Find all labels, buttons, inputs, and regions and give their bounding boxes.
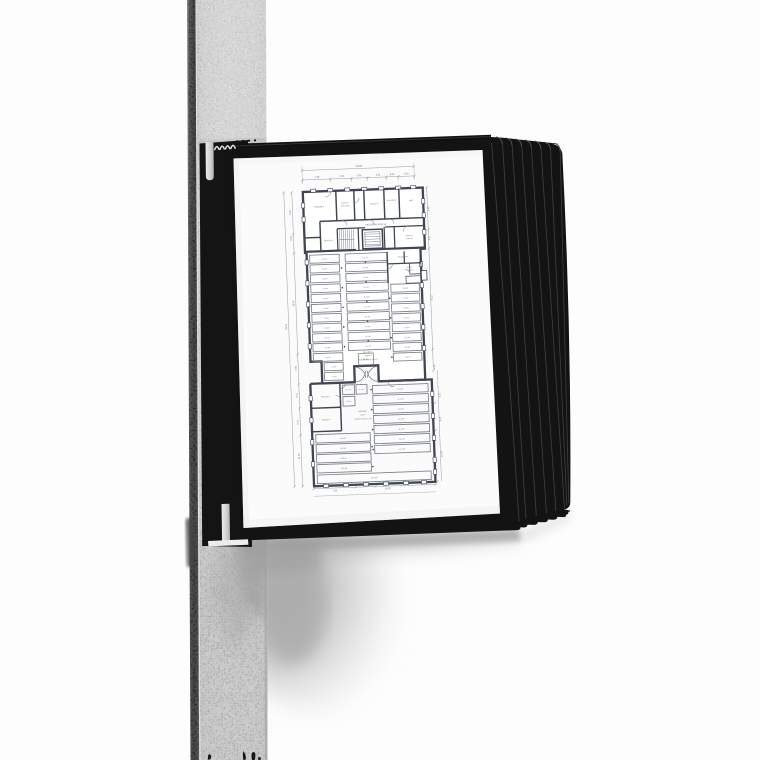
svg-text:2.50: 2.50: [404, 172, 409, 175]
svg-text:9.90: 9.90: [289, 209, 292, 214]
svg-text:10.9 m²: 10.9 m²: [341, 467, 348, 470]
svg-text:10.9 m²: 10.9 m²: [340, 437, 347, 440]
svg-text:4.1 m²: 4.1 m²: [331, 375, 337, 378]
svg-text:3.05: 3.05: [357, 174, 362, 177]
svg-text:6.1 m²: 6.1 m²: [364, 305, 370, 308]
svg-text:KELLER 7: KELLER 7: [322, 419, 330, 421]
svg-text:KELLER 6: KELLER 6: [321, 396, 329, 398]
svg-text:5.0 m²: 5.0 m²: [323, 307, 329, 310]
svg-text:6.1 m²: 6.1 m²: [363, 266, 369, 269]
svg-text:5.0 m²: 5.0 m²: [324, 326, 330, 329]
svg-text:5.0 m²: 5.0 m²: [323, 287, 329, 290]
svg-text:16.50: 16.50: [385, 487, 392, 490]
svg-text:KUECHE: KUECHE: [406, 238, 414, 240]
svg-text:11.04: 11.04: [440, 450, 443, 457]
svg-text:10.9 m²: 10.9 m²: [340, 447, 347, 450]
svg-text:4.51: 4.51: [340, 175, 345, 178]
svg-text:7.35: 7.35: [332, 489, 337, 492]
svg-text:20.00: 20.00: [356, 164, 363, 168]
svg-text:6.1 m²: 6.1 m²: [364, 286, 370, 289]
svg-text:4.01: 4.01: [290, 235, 293, 240]
svg-text:5.41: 5.41: [439, 416, 442, 421]
svg-text:WASCH-: WASCH-: [406, 234, 413, 237]
svg-text:24.6 m²: 24.6 m²: [371, 476, 378, 479]
svg-text:196 m²: 196 m²: [365, 354, 371, 357]
svg-text:5.0 m²: 5.0 m²: [324, 317, 330, 320]
svg-text:25.07: 25.07: [292, 300, 295, 307]
svg-text:7.26: 7.26: [315, 176, 320, 179]
svg-text:9.21: 9.21: [438, 392, 441, 397]
svg-text:5.2 m²: 5.2 m²: [404, 316, 410, 319]
svg-text:6.1 m²: 6.1 m²: [365, 325, 371, 328]
svg-text:5.41: 5.41: [296, 419, 299, 424]
svg-text:11.4 m²: 11.4 m²: [399, 437, 405, 440]
svg-text:59.41: 59.41: [285, 323, 288, 330]
svg-text:11.4 m²: 11.4 m²: [399, 447, 405, 450]
svg-text:5.2 m²: 5.2 m²: [403, 306, 409, 309]
svg-text:WASCHK.: WASCHK.: [341, 201, 349, 204]
svg-text:9.90: 9.90: [427, 206, 430, 211]
svg-text:6.1 m²: 6.1 m²: [363, 276, 369, 279]
svg-text:4.01: 4.01: [428, 235, 431, 240]
svg-text:3.2 m²: 3.2 m²: [346, 388, 351, 391]
svg-text:105 m²: 105 m²: [360, 413, 366, 416]
svg-text:5.2 m²: 5.2 m²: [404, 326, 410, 329]
svg-text:5.2 m²: 5.2 m²: [405, 346, 411, 349]
svg-text:4.60: 4.60: [294, 365, 297, 370]
svg-text:6.1 m²: 6.1 m²: [363, 256, 369, 259]
svg-text:11.4 m²: 11.4 m²: [398, 408, 404, 411]
svg-text:5.2 m²: 5.2 m²: [405, 336, 411, 339]
svg-text:6.1 m²: 6.1 m²: [364, 296, 370, 299]
svg-text:KELLER 1: KELLER 1: [358, 411, 367, 413]
svg-text:5.0 m²: 5.0 m²: [325, 336, 331, 339]
svg-text:5.0 m²: 5.0 m²: [325, 356, 331, 359]
svg-text:5.0 m²: 5.0 m²: [322, 267, 328, 270]
svg-text:23.37: 23.37: [430, 294, 433, 301]
svg-text:5.0 m²: 5.0 m²: [325, 346, 331, 349]
svg-text:KELLER 4: KELLER 4: [370, 203, 378, 205]
svg-text:ABST.: ABST.: [409, 199, 414, 202]
svg-text:9.21: 9.21: [295, 392, 298, 397]
svg-text:WINDF.: WINDF.: [363, 359, 369, 361]
svg-text:3.64: 3.64: [390, 173, 395, 176]
svg-text:4.62: 4.62: [433, 364, 436, 369]
svg-text:4.1 m²: 4.1 m²: [331, 365, 337, 368]
svg-text:5.0 m²: 5.0 m²: [322, 277, 328, 280]
svg-text:5.0 m²: 5.0 m²: [323, 297, 329, 300]
svg-text:11.4 m²: 11.4 m²: [397, 388, 403, 391]
svg-text:6.1 m²: 6.1 m²: [366, 335, 372, 338]
svg-text:6.1 m²: 6.1 m²: [366, 345, 372, 348]
svg-text:11.04: 11.04: [298, 453, 301, 460]
svg-text:11.4 m²: 11.4 m²: [398, 418, 404, 421]
svg-text:KELLER 5: KELLER 5: [315, 206, 325, 208]
svg-text:ABSTELLR.: ABSTELLR.: [324, 239, 334, 242]
svg-text:5.2 m²: 5.2 m²: [403, 296, 409, 299]
svg-text:10.9 m²: 10.9 m²: [340, 457, 347, 460]
svg-text:4.51: 4.51: [376, 173, 381, 176]
svg-text:5.2 m²: 5.2 m²: [403, 287, 409, 290]
svg-text:11.4 m²: 11.4 m²: [397, 398, 403, 401]
svg-text:TROCKEN: TROCKEN: [341, 205, 350, 207]
svg-text:11.4 m²: 11.4 m²: [398, 428, 404, 431]
svg-text:5.0 m²: 5.0 m²: [322, 258, 328, 261]
svg-text:5.2 m²: 5.2 m²: [405, 356, 411, 359]
svg-text:3.1 m²: 3.1 m²: [359, 388, 364, 391]
svg-text:3.0 m²: 3.0 m²: [347, 400, 352, 403]
svg-text:6.1 m²: 6.1 m²: [365, 315, 371, 318]
